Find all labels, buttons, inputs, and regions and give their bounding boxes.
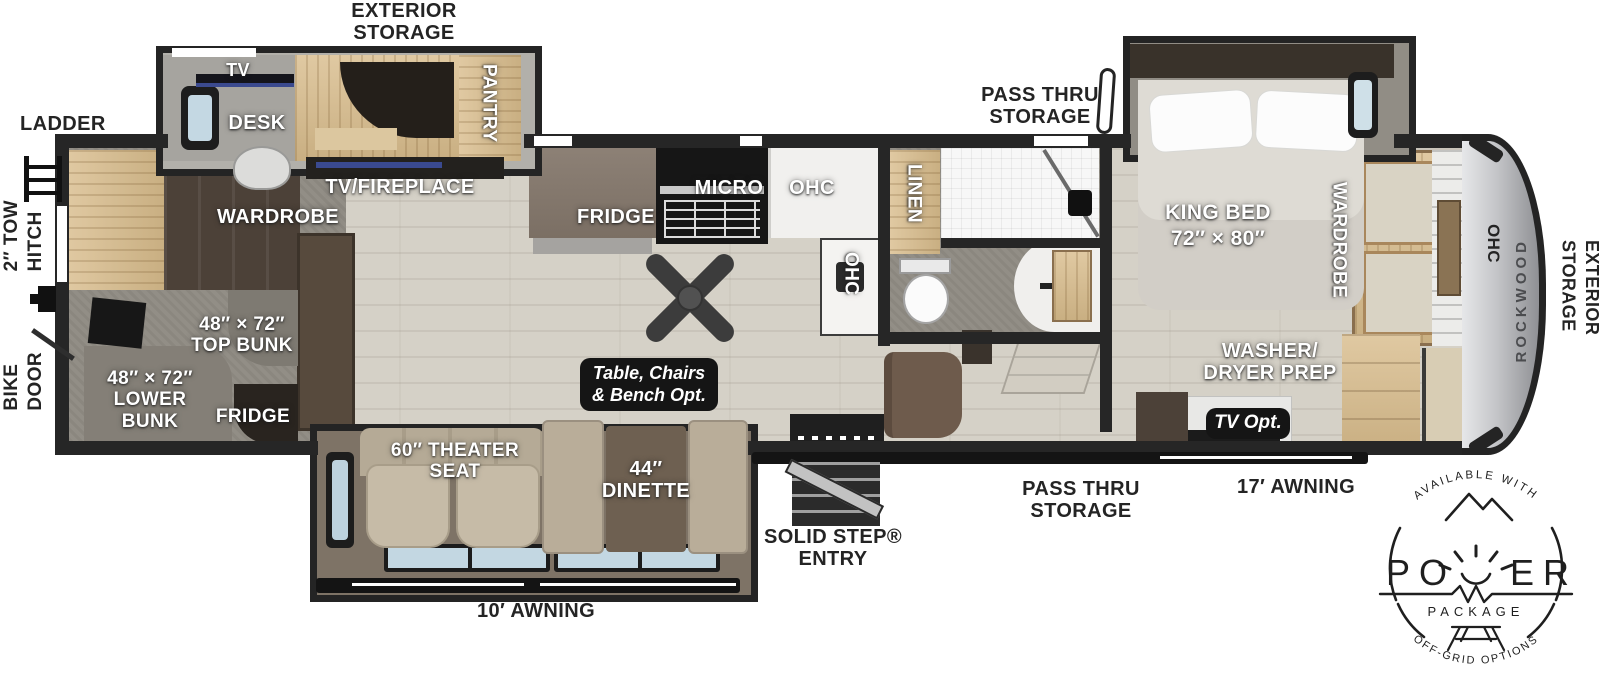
label-linen: LINEN — [903, 164, 924, 223]
label-tv-fireplace: TV/FIREPLACE — [325, 176, 474, 198]
desk-chair — [233, 146, 291, 190]
label-ohc-right: OHC — [1484, 224, 1503, 263]
bath-wall-right — [1100, 148, 1112, 432]
label-ohc-island: OHC — [840, 252, 861, 295]
bath-wall-shower — [941, 238, 1112, 248]
entry-landing-dashes — [798, 436, 876, 440]
window-gap-slide-top — [172, 48, 256, 57]
bunk-divider-cabinet — [297, 233, 355, 431]
label-king-bed: KING BED72″ × 80″ — [1165, 200, 1271, 253]
label-dinette: 44″DINETTE — [602, 458, 690, 503]
bedroom-wood-box — [1136, 392, 1188, 442]
bedroom-tall-cabinet — [1422, 348, 1464, 452]
label-desk: DESK — [228, 112, 285, 134]
label-exterior-storage-right: EXTERIORSTORAGE — [1556, 240, 1600, 335]
window-gap-top-3 — [1034, 136, 1088, 146]
window-gap-top-1 — [534, 136, 572, 146]
wardrobe-pane-top — [1363, 161, 1439, 245]
logo-power-right: ER — [1510, 552, 1578, 593]
label-pass-thru-bottom: PASS THRUSTORAGE — [1022, 478, 1140, 523]
logo-package: PACKAGE — [1428, 604, 1525, 619]
bunk-tv — [88, 297, 147, 348]
bath-sink — [1052, 250, 1092, 322]
awning-10-bar-slit2 — [540, 583, 736, 586]
toilet-tank — [899, 258, 951, 274]
shower-head-icon — [1068, 190, 1092, 216]
dinette-bench-right — [688, 420, 748, 554]
label-fridge-bunk: FRIDGE — [216, 406, 290, 427]
pillow-left — [1148, 89, 1254, 154]
label-awning-10: 10′ AWNING — [477, 600, 595, 622]
window-gap-rear-wall — [57, 206, 67, 282]
tv-option-badge: TV Opt. — [1206, 408, 1290, 439]
bath-wall-left — [878, 148, 890, 346]
lounge-chair — [884, 352, 962, 438]
logo-arc-bottom-right — [1528, 604, 1554, 637]
label-rockwood: ROCKWOOD — [1514, 238, 1531, 363]
label-theater-seat: 60″ THEATERSEAT — [391, 440, 519, 483]
label-pass-thru-top: PASS THRUSTORAGE — [981, 84, 1099, 129]
slide-window-1 — [384, 544, 474, 572]
slide-cabinet-shelf — [315, 128, 397, 150]
bath-faucet — [1040, 283, 1052, 289]
tv-fireplace-screen — [316, 162, 442, 168]
label-pantry: PANTRY — [478, 64, 499, 142]
label-ladder: LADDER — [20, 113, 106, 135]
logo-sun-smile — [1462, 574, 1490, 584]
fan-hub — [677, 285, 703, 311]
hitch-icon-pin — [30, 294, 40, 304]
kitchen-range-grate — [664, 200, 760, 238]
front-ohc-shelves — [1437, 200, 1461, 296]
ladder-icon — [24, 156, 62, 202]
front-cap — [1462, 134, 1546, 455]
floorplan-canvas: EXTERIORSTORAGE LADDER 2″ TOWHITCH BIKED… — [0, 0, 1600, 676]
label-tv: TV — [226, 60, 250, 80]
label-top-bunk: 48″ × 72″TOP BUNK — [191, 314, 293, 357]
ceiling-fan — [632, 240, 748, 356]
bath-wall-bottom — [878, 332, 1112, 344]
hitch-icon — [38, 286, 56, 312]
label-wardrobe-left: WARDROBE — [217, 206, 339, 228]
wardrobe-pane-bottom — [1363, 251, 1439, 335]
toilet-bowl — [903, 274, 949, 324]
bedroom-dresser — [1342, 334, 1420, 452]
window-gap-top-2 — [740, 136, 762, 146]
label-awning-17: 17′ AWNING — [1237, 476, 1355, 498]
label-washer-dryer: WASHER/DRYER PREP — [1203, 340, 1336, 385]
awning-17-bar-slit — [1160, 456, 1352, 459]
label-exterior-storage-top: EXTERIORSTORAGE — [351, 0, 456, 45]
label-micro: MICRO — [695, 177, 764, 199]
dinette-bench-left — [542, 420, 604, 554]
pillow-right — [1255, 89, 1360, 152]
label-fridge: FRIDGE — [577, 206, 655, 228]
logo-mountains-icon — [1446, 494, 1512, 520]
label-bike-door: BIKEDOOR — [0, 352, 48, 411]
rear-wardrobe-cabinet — [66, 150, 164, 290]
slide-window-left-glass — [332, 460, 348, 540]
label-lower-bunk: 48″ × 72″LOWERBUNK — [107, 368, 193, 432]
wall-top-left — [55, 134, 168, 148]
table-option-badge: Table, Chairs& Bench Opt. — [580, 358, 718, 411]
awning-10-bar-slit1 — [352, 583, 524, 586]
logo-power-left: PO — [1386, 552, 1456, 593]
desk-window-glass — [188, 95, 212, 141]
label-tow-hitch: 2″ TOWHITCH — [0, 200, 48, 271]
logo-available-with: AVAILABLE WITH — [1412, 469, 1541, 502]
slide-window-2 — [468, 544, 550, 572]
power-package-logo: AVAILABLE WITH PO ER PACKAGE OFF-GRID OP… — [1366, 464, 1586, 676]
bed-window-glass — [1354, 80, 1372, 130]
wall-bottom-left — [55, 441, 318, 455]
label-ohc-kitchen: OHC — [789, 177, 835, 199]
label-solid-step: SOLID STEP®ENTRY — [764, 526, 902, 571]
label-wardrobe-right: WARDROBE — [1328, 182, 1349, 298]
logo-arc-bottom-left — [1398, 604, 1424, 637]
logo-picnic-table-icon — [1448, 627, 1504, 650]
